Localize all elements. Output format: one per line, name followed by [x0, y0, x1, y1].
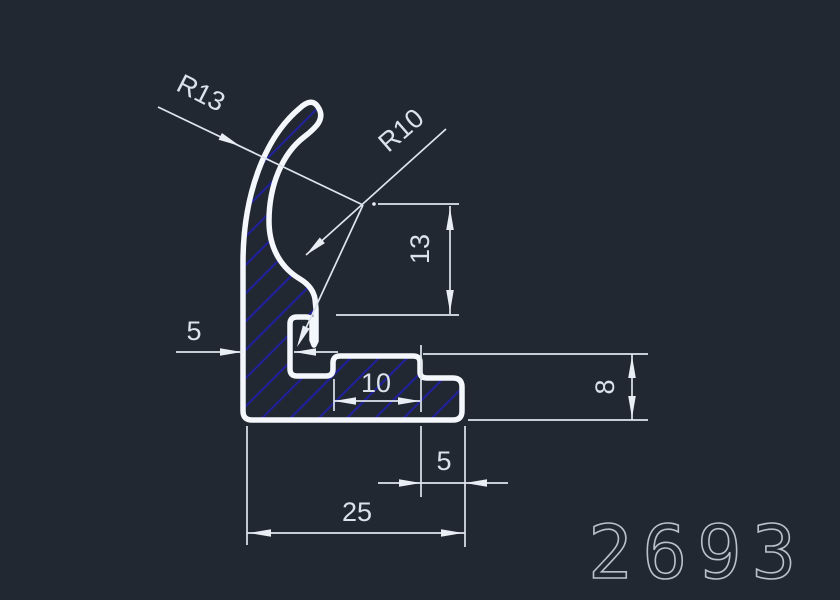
arrowhead: [628, 356, 636, 378]
arrowhead: [628, 396, 636, 418]
dimension-labels: R13 R10 13 5 10 8 5 25: [172, 68, 620, 527]
part-number: 2693: [588, 510, 806, 596]
dim-label-5-bottom: 5: [436, 446, 451, 476]
arrowhead: [294, 325, 310, 348]
dim-line-radius-ray: [299, 205, 363, 343]
arrowhead: [294, 348, 316, 356]
arrowhead: [446, 208, 454, 230]
dim-label-r10: R10: [373, 103, 430, 158]
dim-label-5-left: 5: [186, 316, 201, 346]
arrowhead: [465, 479, 487, 487]
dim-label-13: 13: [405, 234, 435, 264]
dim-label-8: 8: [590, 379, 620, 394]
dim-label-10: 10: [361, 368, 391, 398]
arrowhead: [249, 529, 271, 537]
arrowhead: [399, 479, 421, 487]
arrowhead: [219, 133, 242, 149]
arrowhead: [446, 290, 454, 312]
arrowhead: [441, 529, 463, 537]
arc-center-mark: [372, 202, 376, 206]
dim-label-25: 25: [342, 497, 372, 527]
profile-drawing: R13 R10 13 5 10 8 5 25 2693: [0, 0, 840, 600]
arrowhead: [220, 348, 242, 356]
dim-label-r13: R13: [172, 68, 230, 117]
cad-drawing-canvas: R13 R10 13 5 10 8 5 25 2693: [0, 0, 840, 600]
